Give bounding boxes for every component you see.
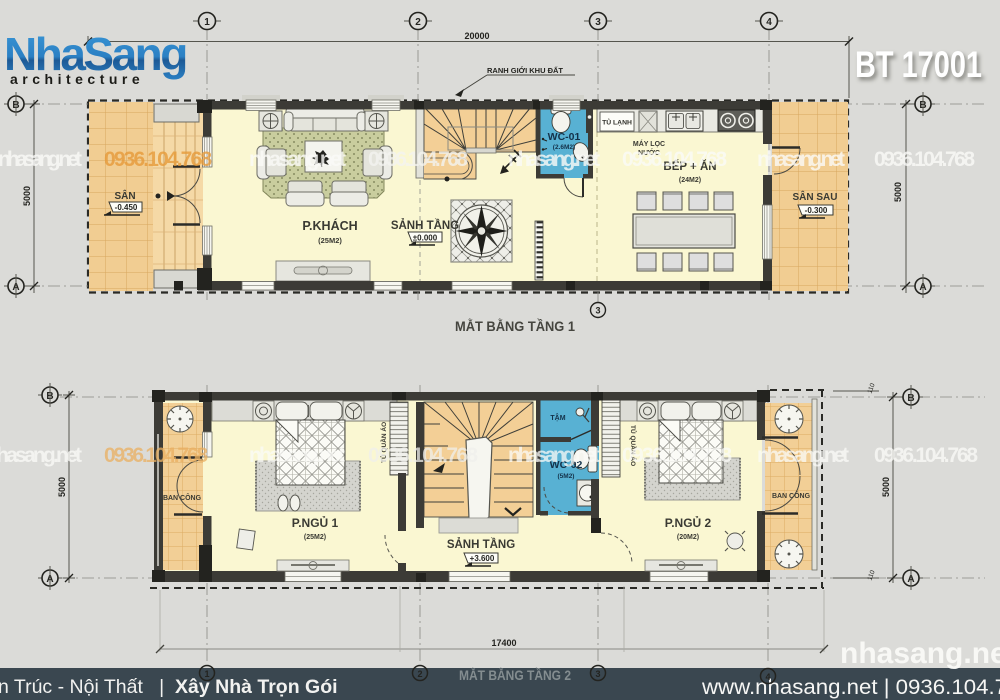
svg-text:0936.104.768: 0936.104.768	[874, 148, 975, 171]
svg-text:www.nhasang.net | 0936.104.7: www.nhasang.net | 0936.104.7	[701, 676, 1000, 699]
svg-text:0936.104.768: 0936.104.768	[622, 444, 732, 467]
svg-text:BAN CÔNG: BAN CÔNG	[163, 493, 202, 502]
svg-text:P.NGỦ 1: P.NGỦ 1	[292, 515, 339, 530]
svg-text:SÂN: SÂN	[114, 189, 135, 202]
svg-text:TẬM: TẬM	[550, 413, 565, 422]
svg-text:±0.000: ±0.000	[413, 234, 438, 243]
svg-text:nhasang.net: nhasang.net	[249, 444, 345, 467]
svg-text:(5M2): (5M2)	[558, 473, 575, 480]
svg-text:5000: 5000	[22, 186, 32, 206]
svg-text:0936.104.768: 0936.104.768	[104, 444, 208, 467]
svg-text:1: 1	[204, 17, 210, 28]
svg-text:nhasang.net: nhasang.net	[249, 148, 346, 171]
svg-text:nhasang.net: nhasang.net	[757, 444, 849, 467]
svg-text:SÂN SAU: SÂN SAU	[792, 190, 837, 203]
svg-text:5000: 5000	[881, 477, 891, 497]
svg-text:n Trúc - Nội Thất | Xây Nhà: n Trúc - Nội Thất | Xây Nhà Trọn Gói	[0, 676, 338, 698]
svg-text:RANH GIỚI KHU ĐẤT: RANH GIỚI KHU ĐẤT	[487, 65, 563, 75]
svg-text:0936.104.768: 0936.104.768	[874, 444, 978, 467]
svg-text:1: 1	[204, 669, 209, 679]
svg-text:BT 17001: BT 17001	[855, 44, 982, 85]
svg-text:0936.104.768: 0936.104.768	[368, 148, 468, 171]
svg-text:0936.104.768: 0936.104.768	[622, 148, 727, 171]
svg-text:5000: 5000	[893, 182, 903, 202]
svg-text:-0.450: -0.450	[115, 203, 138, 212]
svg-text:17400: 17400	[491, 638, 516, 648]
svg-text:3: 3	[595, 17, 601, 28]
svg-text:WC-01: WC-01	[548, 131, 581, 143]
svg-text:+3.600: +3.600	[470, 554, 495, 563]
svg-text:-0.300: -0.300	[805, 206, 828, 215]
svg-text:(25M2): (25M2)	[304, 534, 326, 541]
svg-text:SẢNH TẦNG: SẢNH TẦNG	[391, 219, 459, 232]
svg-text:nhasang.net: nhasang.net	[508, 444, 600, 467]
svg-text:(20M2): (20M2)	[677, 534, 699, 541]
svg-text:SẢNH TẦNG: SẢNH TẦNG	[447, 538, 515, 551]
svg-text:0936.104.768: 0936.104.768	[104, 148, 212, 171]
svg-text:nhasang.net: nhasang.net	[0, 148, 82, 171]
svg-text:BAN CÔNG: BAN CÔNG	[772, 491, 811, 500]
svg-text:(25M2): (25M2)	[318, 236, 342, 245]
svg-text:P.KHÁCH: P.KHÁCH	[302, 218, 357, 233]
svg-text:MẰT BẰNG TẦNG 2: MẰT BẰNG TẦNG 2	[459, 668, 571, 683]
svg-text:5000: 5000	[57, 477, 67, 497]
svg-text:3: 3	[595, 669, 600, 679]
svg-text:nhasang.net: nhasang.net	[840, 637, 1000, 670]
svg-text:3: 3	[595, 306, 600, 316]
svg-text:P.NGỦ 2: P.NGỦ 2	[665, 515, 712, 530]
svg-text:0936.104.768: 0936.104.768	[368, 444, 478, 467]
svg-text:nhasang.net: nhasang.net	[508, 148, 600, 171]
svg-text:20000: 20000	[464, 31, 489, 41]
svg-text:nhasang.net: nhasang.net	[0, 444, 82, 467]
svg-text:nhasang.net: nhasang.net	[757, 148, 845, 171]
svg-text:(24M2): (24M2)	[679, 177, 701, 184]
svg-text:MẰT BẰNG TẦNG 1: MẰT BẰNG TẦNG 1	[455, 317, 575, 334]
svg-text:MÁY LỌC: MÁY LỌC	[633, 139, 665, 148]
svg-text:4: 4	[765, 672, 770, 682]
svg-text:TỦ LẠNH: TỦ LẠNH	[602, 118, 632, 127]
svg-text:4: 4	[766, 17, 772, 28]
svg-text:2: 2	[417, 669, 422, 679]
svg-text:2: 2	[415, 17, 421, 28]
svg-text:architecture: architecture	[10, 71, 144, 87]
